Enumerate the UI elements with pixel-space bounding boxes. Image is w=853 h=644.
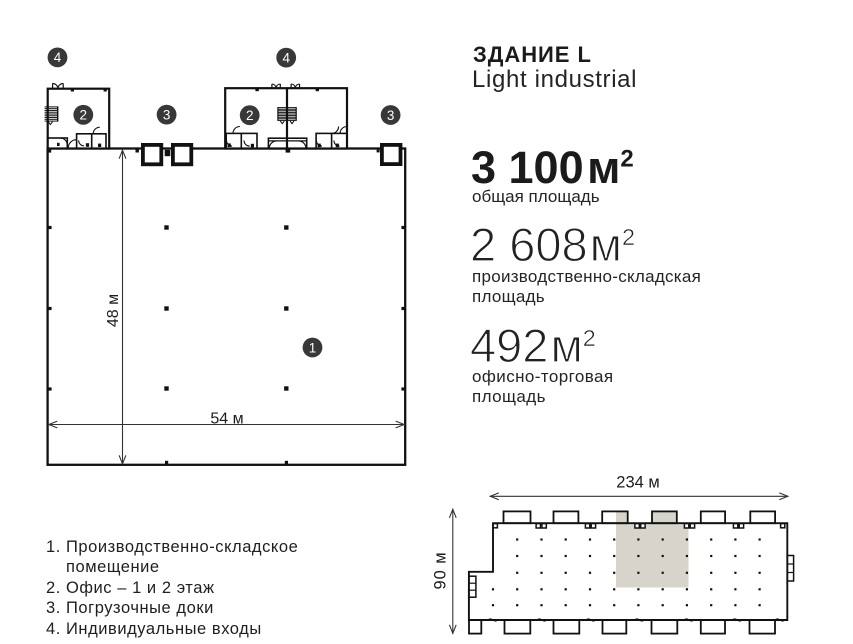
svg-text:4: 4 (282, 50, 290, 65)
svg-text:1: 1 (309, 340, 317, 355)
svg-text:90 м: 90 м (432, 552, 450, 590)
svg-text:2: 2 (246, 108, 254, 123)
svg-text:2: 2 (80, 108, 88, 123)
svg-text:54 м: 54 м (210, 410, 243, 427)
svg-text:4: 4 (54, 50, 62, 65)
svg-text:48 м: 48 м (105, 294, 122, 327)
svg-text:3: 3 (163, 107, 171, 122)
svg-text:234 м: 234 м (616, 474, 659, 492)
svg-text:3: 3 (387, 108, 395, 123)
